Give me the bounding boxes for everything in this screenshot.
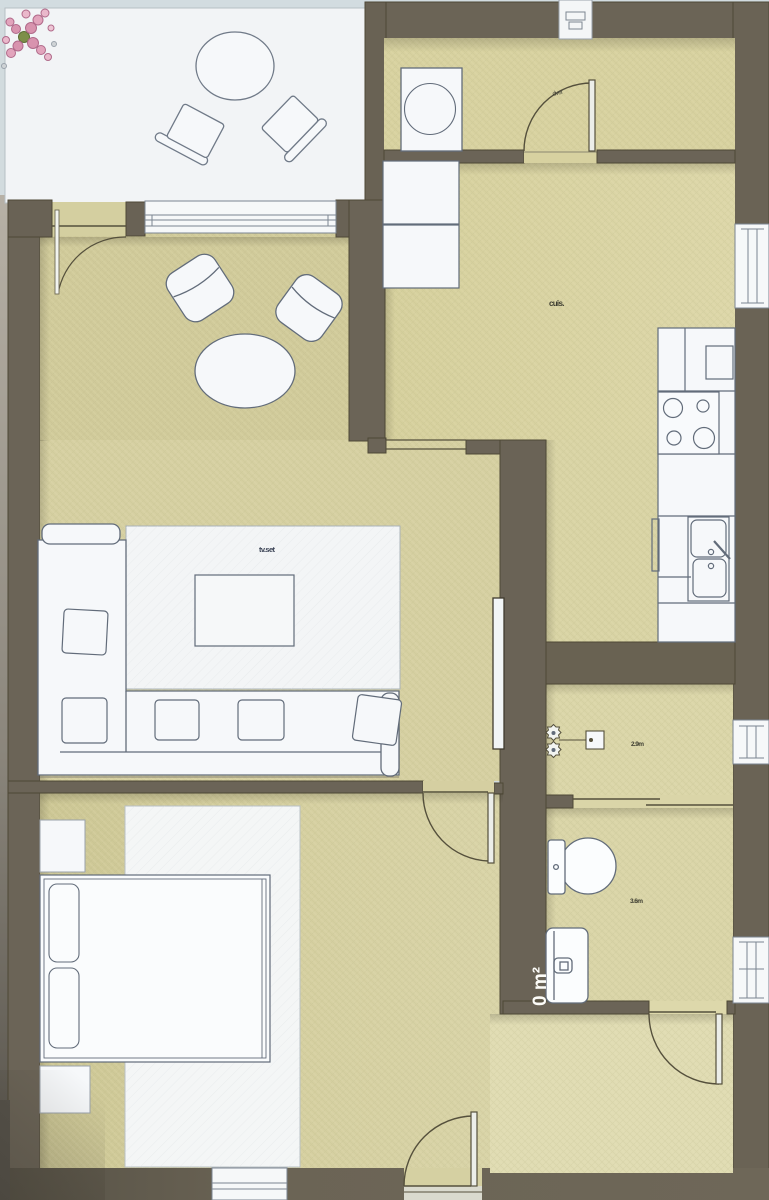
svg-text:cuis.: cuis. — [549, 299, 564, 308]
svg-text:0 m²: 0 m² — [530, 967, 551, 1006]
svg-text:2.9m: 2.9m — [631, 741, 644, 748]
svg-text:tv.set: tv.set — [259, 545, 276, 554]
svg-text:3.6m: 3.6m — [630, 898, 643, 905]
